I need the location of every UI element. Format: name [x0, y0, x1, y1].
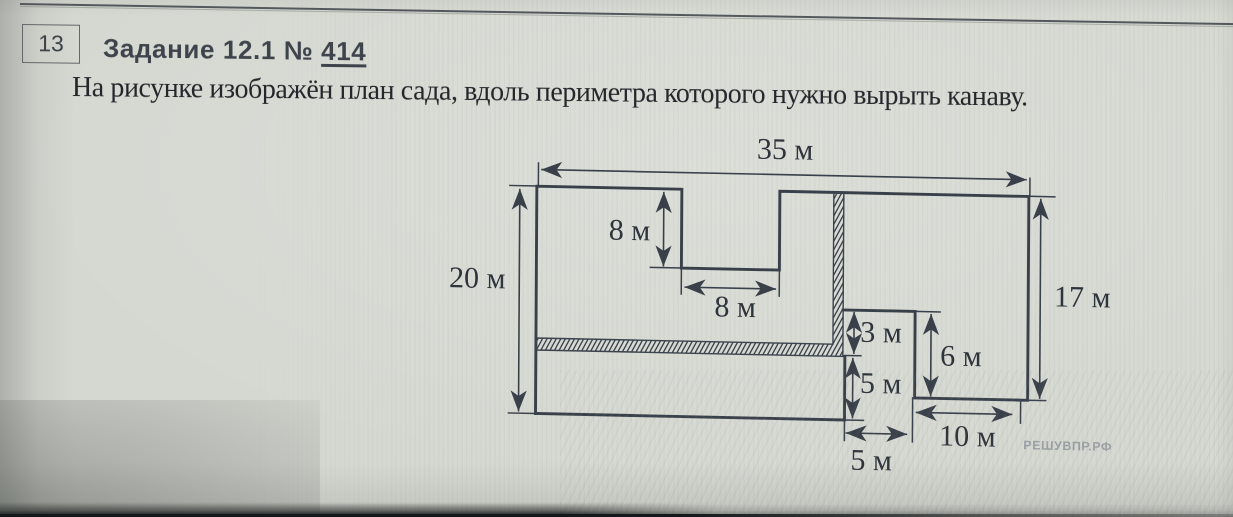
svg-text:8 м: 8 м	[609, 214, 651, 248]
svg-text:35 м: 35 м	[757, 133, 814, 167]
svg-text:8 м: 8 м	[714, 290, 756, 324]
svg-text:3 м: 3 м	[860, 316, 902, 350]
svg-text:20 м: 20 м	[449, 261, 506, 295]
svg-text:6 м: 6 м	[940, 339, 982, 373]
svg-text:17 м: 17 м	[1054, 280, 1111, 314]
